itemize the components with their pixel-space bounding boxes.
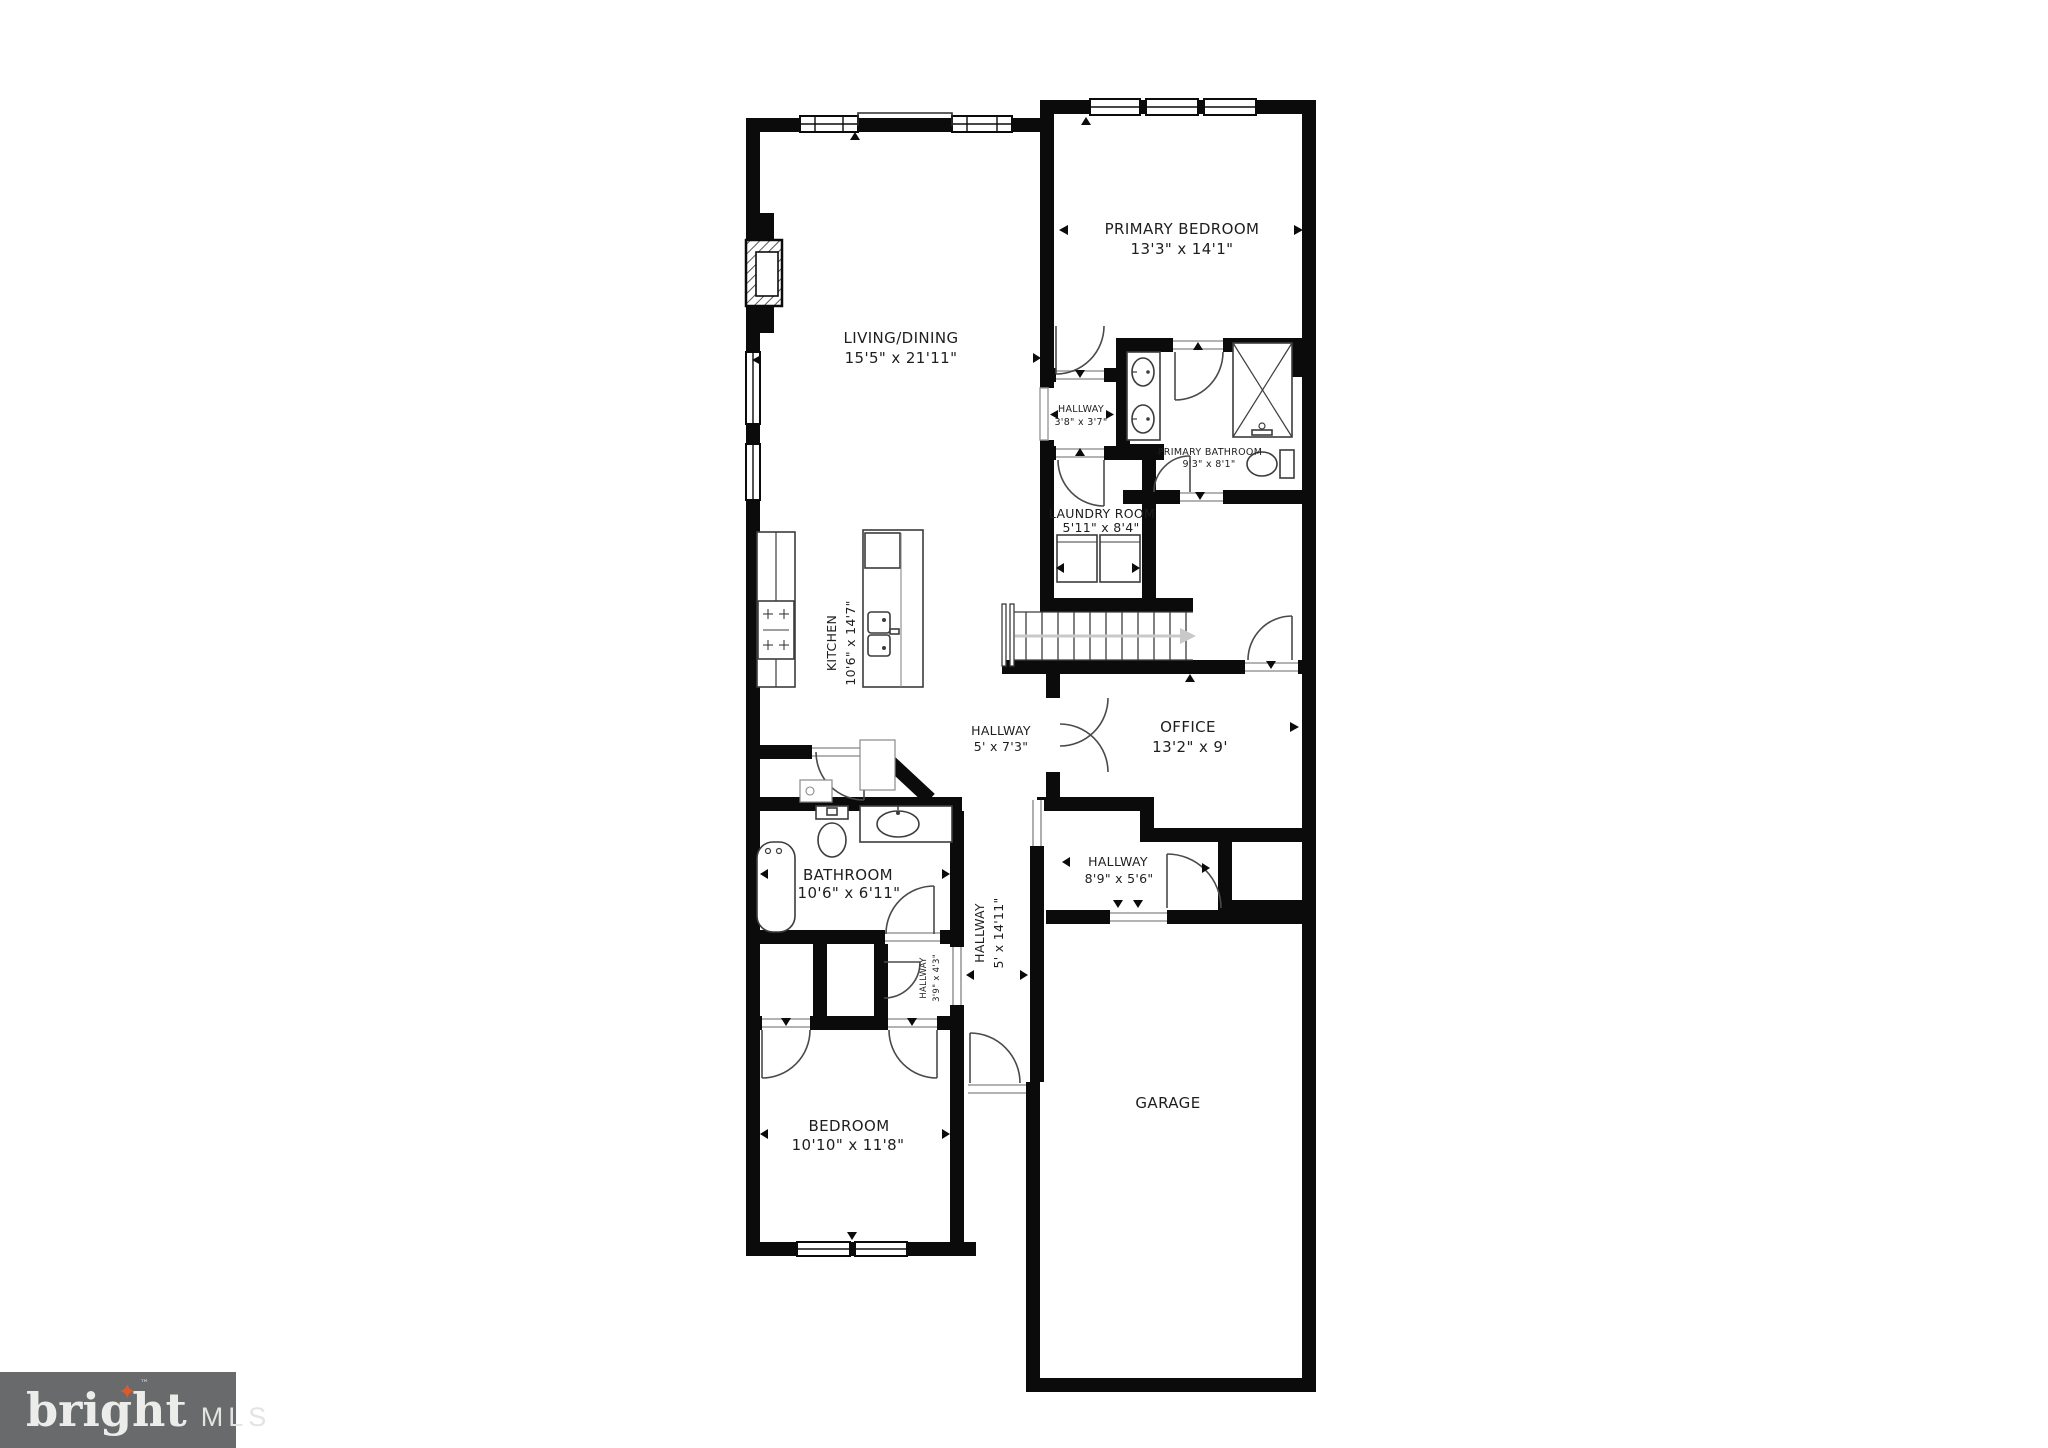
primary-bathroom-dims: 9'3" x 8'1" xyxy=(1182,459,1235,470)
dryer xyxy=(1100,535,1140,582)
room-labels: LIVING/DINING 15'5" x 21'11" PRIMARY BED… xyxy=(792,220,1263,1154)
hallway-center-dims: 5' x 7'3" xyxy=(974,739,1029,754)
bedroom-door-1 xyxy=(762,1030,810,1078)
bedroom-label: BEDROOM xyxy=(808,1117,889,1135)
primary-bedroom-dims: 13'3" x 14'1" xyxy=(1131,240,1234,258)
dimension-marks xyxy=(752,117,1303,1240)
floor-plan-page: LIVING/DINING 15'5" x 21'11" PRIMARY BED… xyxy=(0,0,2048,1448)
hallway-side-dims: 8'9" x 5'6" xyxy=(1085,871,1154,886)
primary-vanity xyxy=(1127,352,1160,440)
bedroom-window-1 xyxy=(797,1242,850,1256)
hallway-center-label: HALLWAY xyxy=(971,723,1031,738)
primary-bedroom-window-3 xyxy=(1204,99,1256,115)
hallway-small-door xyxy=(884,962,920,998)
living-left-window-2 xyxy=(746,444,760,500)
kitchen-label: KITCHEN xyxy=(824,615,839,671)
garage-door xyxy=(1167,854,1221,908)
living-dining-label: LIVING/DINING xyxy=(843,329,958,347)
kitchen-dims: 10'6" x 14'7" xyxy=(843,600,858,685)
bathroom-label: BATHROOM xyxy=(803,866,893,884)
toilet xyxy=(816,806,848,857)
hall-cabinet xyxy=(800,780,832,802)
exterior-side-door xyxy=(970,1033,1020,1083)
living-top-window-2 xyxy=(952,116,1012,132)
primary-bathroom-label: PRIMARY BATHROOM xyxy=(1158,447,1262,458)
kitchen-island xyxy=(863,530,923,687)
hallway-long-label: HALLWAY xyxy=(972,903,987,963)
hallway-long-dims: 5' x 14'11" xyxy=(991,897,1006,968)
bedroom-dims: 10'10" x 11'8" xyxy=(792,1136,905,1154)
star-icon: ✦ xyxy=(118,1382,136,1404)
brightmls-logo: bright ✦ ™ MLS xyxy=(0,1372,236,1448)
hallway-upper-label: HALLWAY xyxy=(1058,404,1104,415)
logo-wordmark: bright xyxy=(26,1387,187,1433)
bathroom-vanity xyxy=(860,806,952,842)
hallway-small-dims: 3'9" x 4'3" xyxy=(932,954,942,1002)
staircase xyxy=(1002,604,1196,666)
hallway-small-label-group: HALLWAY 3'9" x 4'3" xyxy=(919,954,942,1002)
washer xyxy=(1057,535,1097,582)
primary-bedroom-window-2 xyxy=(1146,99,1198,115)
trademark-symbol: ™ xyxy=(140,1380,149,1389)
pantry-cabinet xyxy=(860,740,895,790)
hallway-long-label-group: HALLWAY 5' x 14'11" xyxy=(972,897,1006,968)
range-stove xyxy=(758,601,794,659)
floor-plan-drawing: LIVING/DINING 15'5" x 21'11" PRIMARY BED… xyxy=(0,0,2048,1448)
bathroom-dims: 10'6" x 6'11" xyxy=(798,884,901,902)
laundry-room-dims: 5'11" x 8'4" xyxy=(1062,520,1139,535)
laundry-room-label: LAUNDRY ROOM xyxy=(1049,506,1155,521)
logo-mls-text: MLS xyxy=(201,1402,272,1433)
bathtub xyxy=(757,842,795,932)
vestibule-opening xyxy=(1040,388,1048,440)
kitchen-label-group: KITCHEN 10'6" x 14'7" xyxy=(824,600,858,685)
primary-bedroom-door xyxy=(1056,326,1104,374)
office-double-doors xyxy=(1060,698,1108,772)
office-dims: 13'2" x 9' xyxy=(1152,738,1228,756)
primary-bedroom-window-1 xyxy=(1090,99,1140,115)
hallway-small-label: HALLWAY xyxy=(919,957,929,999)
living-top-window-1 xyxy=(800,116,858,132)
primary-bathroom-door xyxy=(1175,352,1223,400)
hallway-upper-dims: 3'8" x 3'7" xyxy=(1054,417,1107,428)
garage-label: GARAGE xyxy=(1135,1094,1200,1112)
hallway-side-label: HALLWAY xyxy=(1088,854,1148,869)
laundry-door xyxy=(1058,460,1104,506)
door-swings xyxy=(762,326,1292,1083)
bedroom-door-2 xyxy=(889,1030,937,1078)
primary-bedroom-label: PRIMARY BEDROOM xyxy=(1105,220,1260,238)
bedroom-window-2 xyxy=(855,1242,907,1256)
shower xyxy=(1233,343,1292,437)
office-label: OFFICE xyxy=(1160,718,1216,736)
fireplace xyxy=(746,240,782,306)
living-dining-dims: 15'5" x 21'11" xyxy=(845,349,958,367)
front-door xyxy=(1248,616,1292,660)
